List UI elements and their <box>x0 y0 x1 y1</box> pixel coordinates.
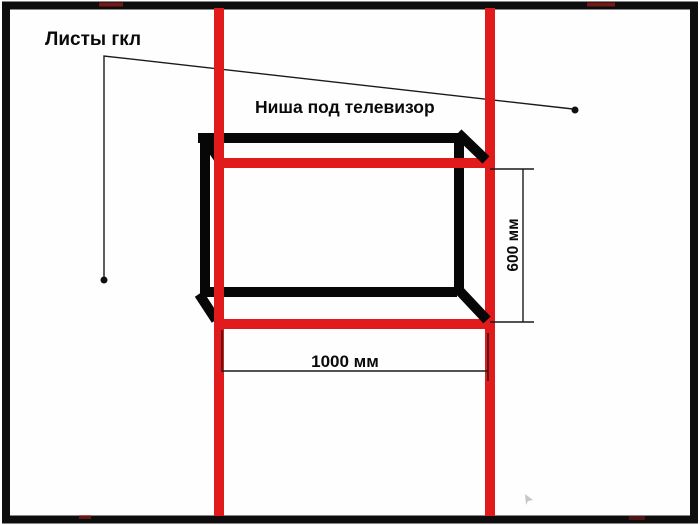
niche-diagram-canvas: Листы гкл Ниша под телевизор 1000 мм 600… <box>0 0 700 525</box>
leader-dot-right <box>572 107 579 114</box>
leader-dot-left <box>101 277 108 284</box>
width-dimension-label: 1000 мм <box>311 352 379 371</box>
niche-diagram: Листы гкл Ниша под телевизор 1000 мм 600… <box>0 0 700 525</box>
diagram-background <box>0 0 700 525</box>
niche-title-label: Ниша под телевизор <box>255 97 435 117</box>
height-dimension-label: 600 мм <box>505 218 522 271</box>
drywall-label: Листы гкл <box>45 29 141 50</box>
